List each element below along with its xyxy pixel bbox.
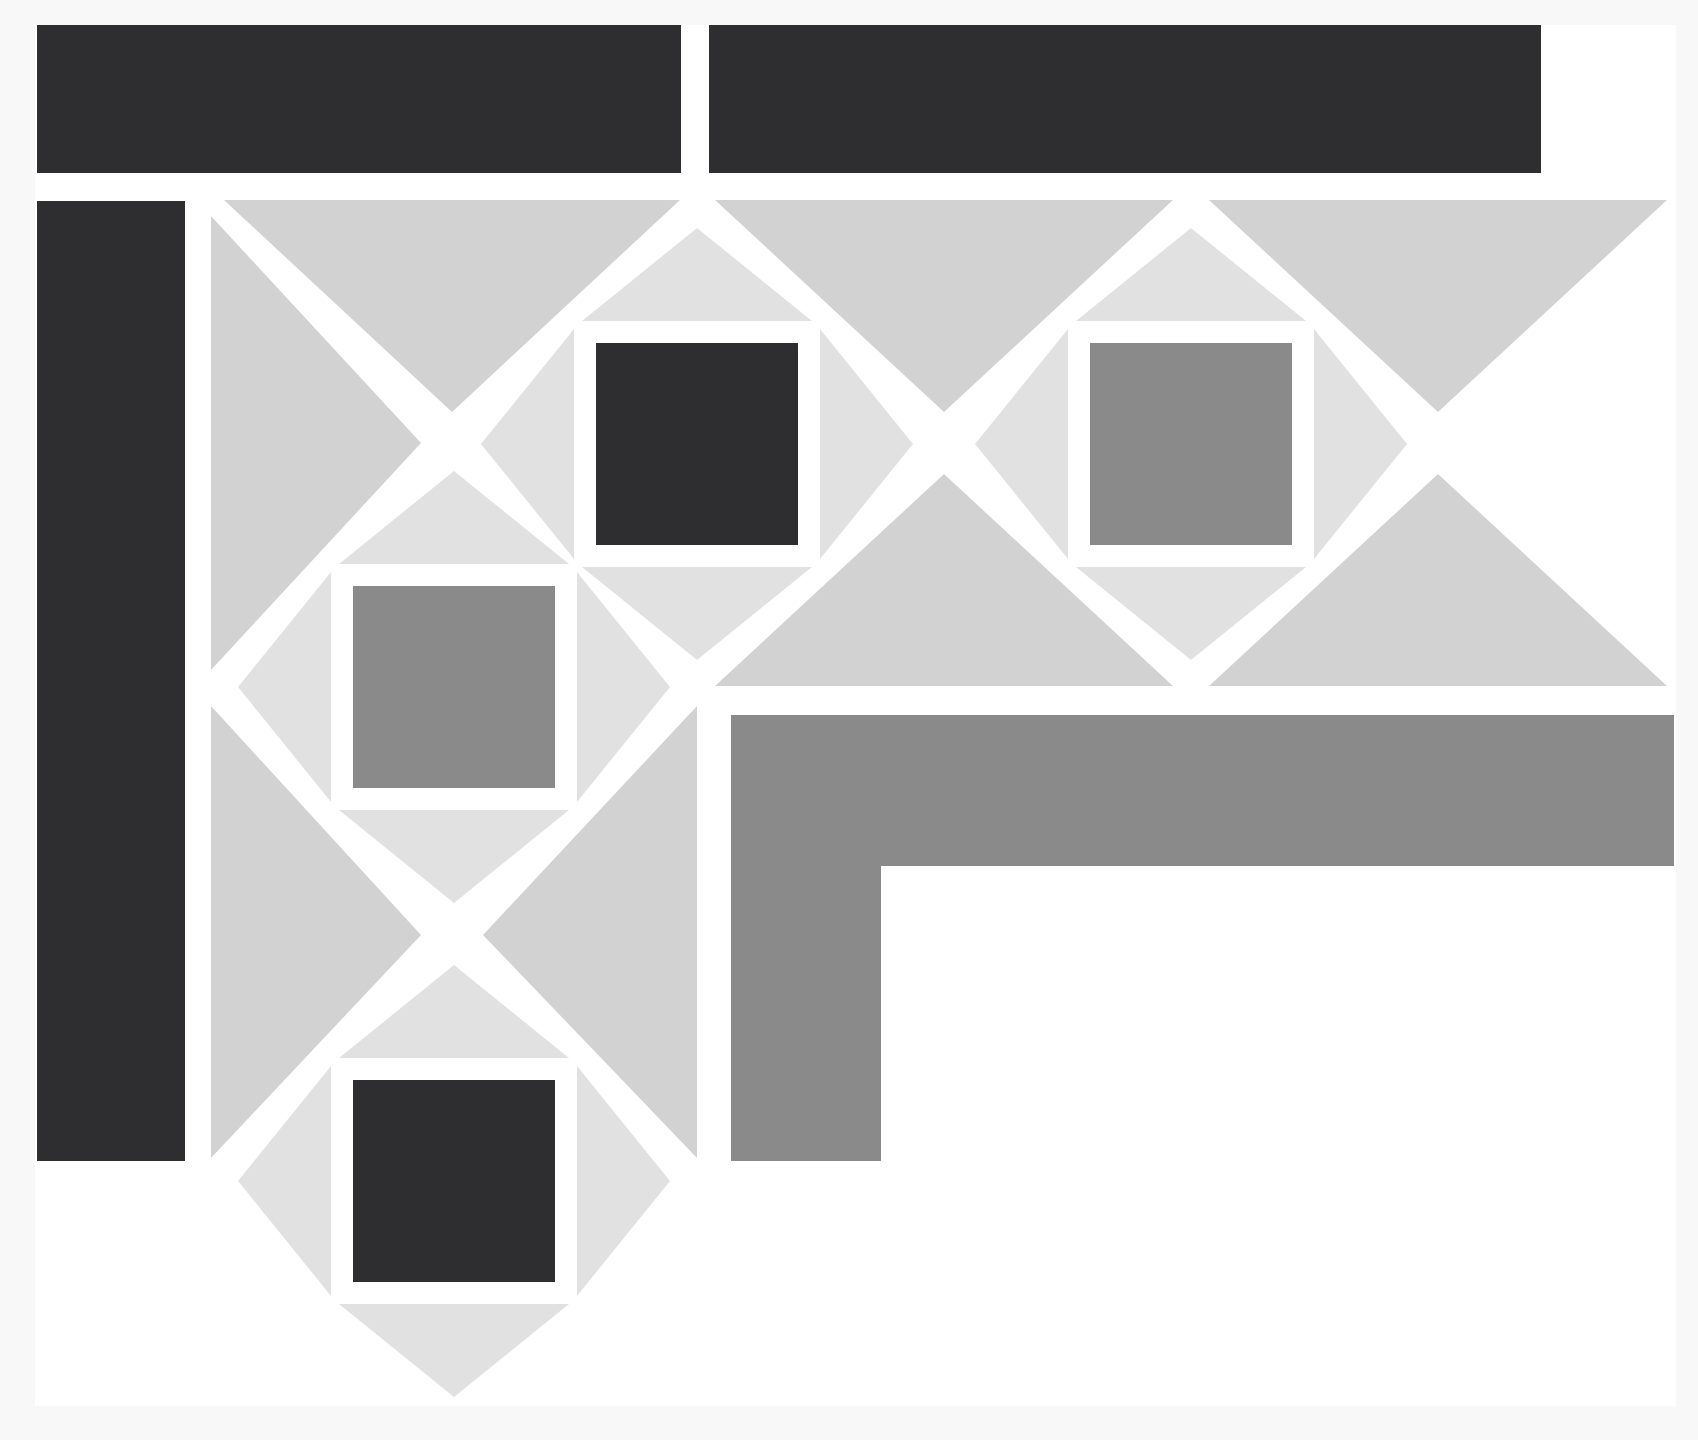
quilt-border-pattern-image [0,0,1698,1440]
center-square-left-gray [353,586,555,788]
binding-bar-top-right [709,25,1541,173]
center-square-left-dark [353,1080,555,1282]
binding-bar-left [37,201,185,1161]
center-square-top-gray [1090,343,1292,545]
binding-bar-top-left [37,25,681,173]
center-square-top-dark [596,343,798,545]
quilt-pattern-stage [0,0,1698,1440]
